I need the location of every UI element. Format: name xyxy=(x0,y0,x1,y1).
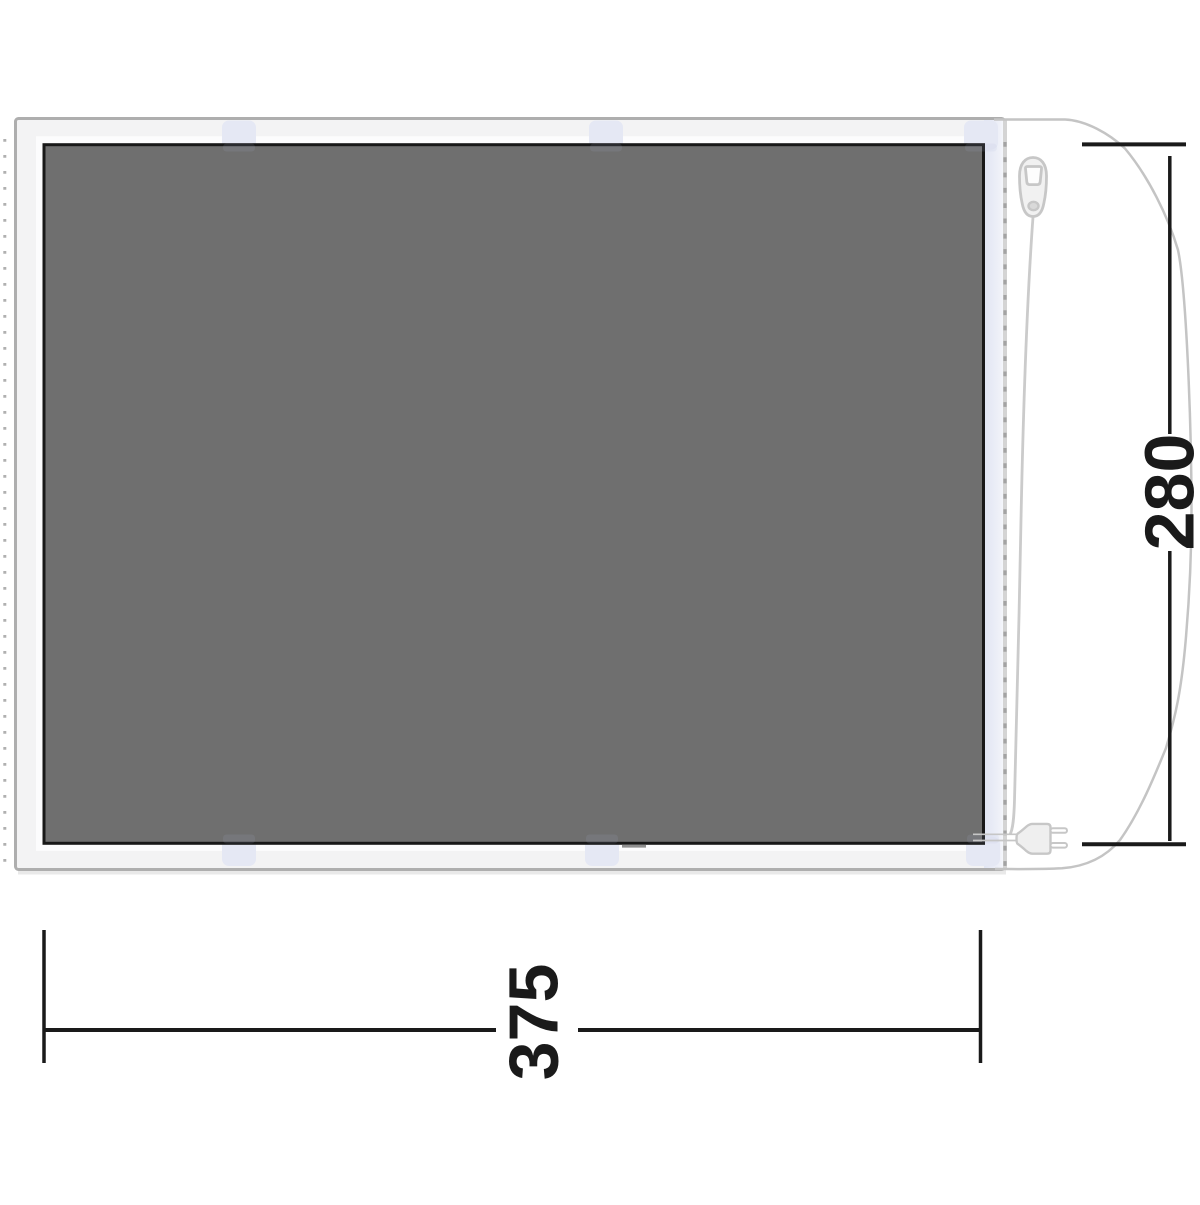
svg-text:280: 280 xyxy=(1130,434,1200,551)
svg-text:375: 375 xyxy=(495,964,573,1081)
